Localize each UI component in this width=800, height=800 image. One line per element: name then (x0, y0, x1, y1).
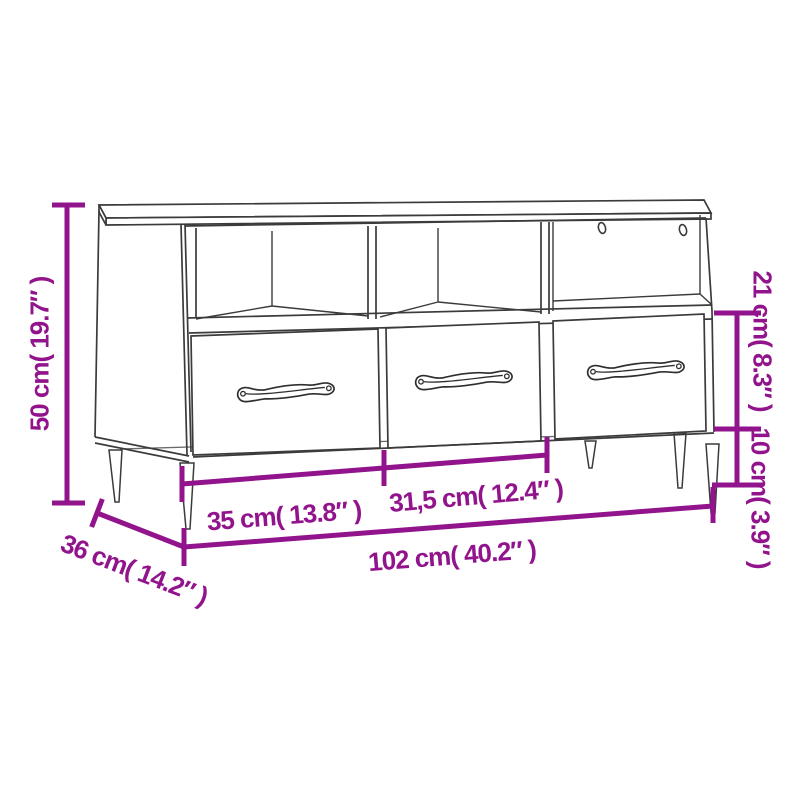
label-height: 50 cm( 19.7″ ) (25, 277, 56, 432)
cabinet-line-drawing (0, 0, 800, 800)
leg-back-right (674, 433, 686, 488)
label-compartment-height: 21 cm( 8.3″ ) (747, 270, 778, 411)
product-dimension-diagram: 50 cm( 19.7″ ) 21 cm( 8.3″ ) 10 cm( 3.9″… (0, 0, 800, 800)
cable-hole-right (678, 224, 687, 236)
cabinet-top-panel (99, 200, 711, 225)
cabinet-right-edge (712, 311, 714, 432)
cabinet-compartments (185, 215, 712, 319)
cabinet (95, 200, 719, 529)
leg-back-left (109, 450, 122, 502)
leg-back-middle (585, 441, 596, 468)
dimension-height-line (52, 205, 85, 503)
cable-hole-left (597, 222, 606, 234)
dimension-depth-line (92, 499, 184, 547)
label-leg-clearance: 10 cm( 3.9″ ) (745, 427, 776, 568)
cabinet-left-side-panel (95, 211, 191, 462)
